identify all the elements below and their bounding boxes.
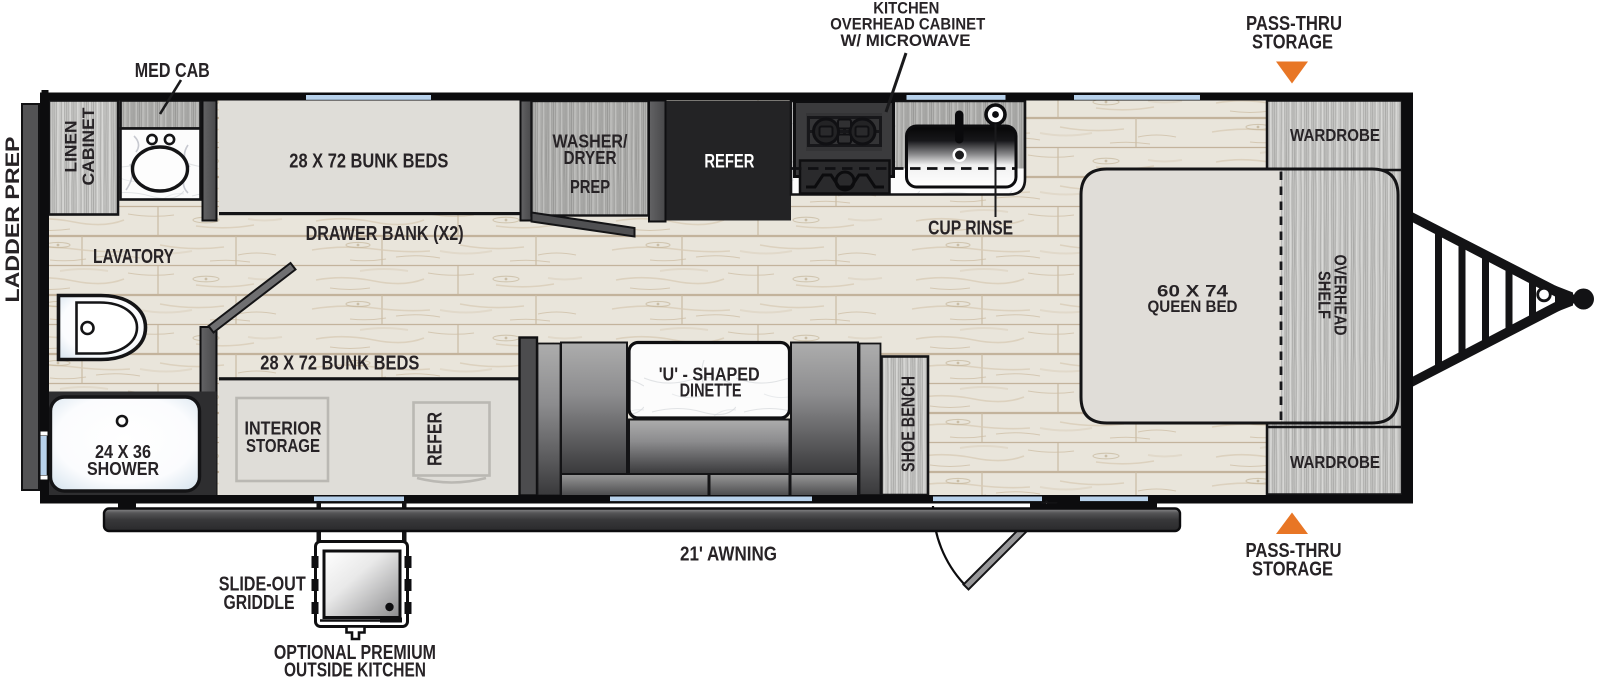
svg-text:DINETTE: DINETTE xyxy=(680,381,742,401)
svg-text:REFER: REFER xyxy=(424,412,447,466)
svg-text:SHOWER: SHOWER xyxy=(87,458,159,479)
svg-text:LINEN: LINEN xyxy=(63,121,81,173)
svg-text:LADDER PREP: LADDER PREP xyxy=(3,136,24,302)
svg-text:SHOE BENCH: SHOE BENCH xyxy=(899,376,919,472)
svg-text:CUP RINSE: CUP RINSE xyxy=(928,217,1013,239)
svg-text:W/ MICROWAVE: W/ MICROWAVE xyxy=(841,31,971,50)
svg-text:QUEEN BED: QUEEN BED xyxy=(1148,297,1238,316)
svg-text:GRIDDLE: GRIDDLE xyxy=(224,592,295,614)
svg-text:28 X 72 BUNK BEDS: 28 X 72 BUNK BEDS xyxy=(289,150,448,172)
svg-text:MED CAB: MED CAB xyxy=(135,60,210,82)
svg-text:OUTSIDE KITCHEN: OUTSIDE KITCHEN xyxy=(284,659,426,678)
svg-text:21' AWNING: 21' AWNING xyxy=(680,544,777,566)
svg-text:REFER: REFER xyxy=(704,152,754,173)
svg-text:SHELF: SHELF xyxy=(1315,271,1335,319)
svg-text:CABINET: CABINET xyxy=(80,108,98,186)
svg-text:WARDROBE: WARDROBE xyxy=(1290,125,1380,145)
svg-text:STORAGE: STORAGE xyxy=(246,436,320,456)
svg-text:DRAWER BANK (X2): DRAWER BANK (X2) xyxy=(306,223,464,245)
svg-text:STORAGE: STORAGE xyxy=(1252,31,1333,53)
svg-text:28 X 72 BUNK BEDS: 28 X 72 BUNK BEDS xyxy=(260,353,419,375)
svg-text:DRYER: DRYER xyxy=(564,147,617,168)
svg-text:STORAGE: STORAGE xyxy=(1252,559,1333,581)
svg-text:PREP: PREP xyxy=(570,176,610,197)
svg-text:LAVATORY: LAVATORY xyxy=(93,246,175,268)
svg-text:WARDROBE: WARDROBE xyxy=(1290,452,1380,472)
